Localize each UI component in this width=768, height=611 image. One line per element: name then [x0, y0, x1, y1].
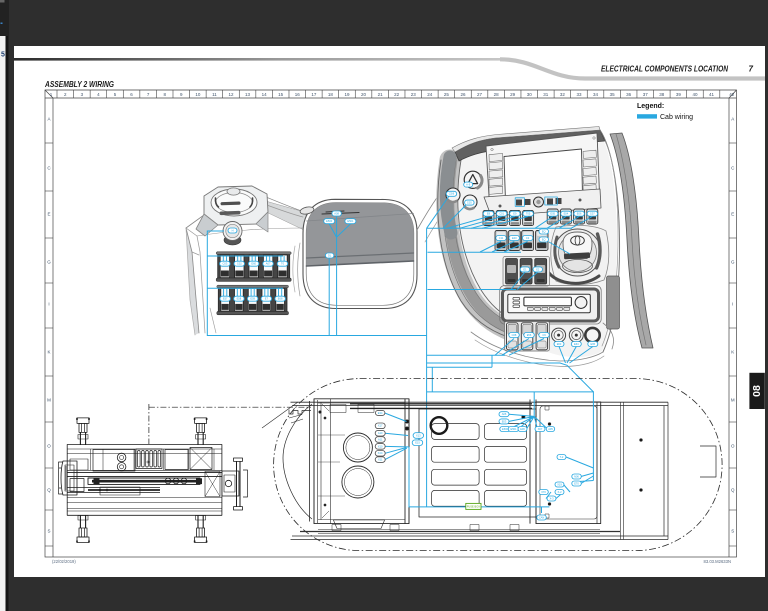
svg-text:C08: C08 — [512, 333, 517, 337]
svg-text:A-9: A-9 — [466, 183, 471, 187]
svg-text:A11: A11 — [378, 437, 383, 441]
svg-text:C2: C2 — [526, 236, 530, 240]
svg-text:C07: C07 — [590, 212, 595, 216]
svg-text:E8: E8 — [487, 212, 491, 216]
svg-text:13: 13 — [245, 92, 251, 97]
svg-text:21: 21 — [378, 92, 384, 97]
svg-text:C01: C01 — [499, 212, 504, 216]
svg-text:25: 25 — [444, 92, 450, 97]
svg-text:E9: E9 — [513, 212, 517, 216]
svg-text:32: 32 — [560, 92, 566, 97]
svg-text:15: 15 — [278, 92, 284, 97]
svg-text:G: G — [47, 260, 51, 265]
svg-text:7: 7 — [749, 65, 754, 74]
svg-text:ELECTRICAL COMPONENTS LOCATION: ELECTRICAL COMPONENTS LOCATION — [601, 64, 729, 74]
svg-text:22: 22 — [394, 92, 400, 97]
svg-text:ASSEMBLY 2 WIRING: ASSEMBLY 2 WIRING — [44, 80, 114, 89]
svg-text:39: 39 — [676, 92, 682, 97]
svg-text:T-2: T-2 — [560, 455, 564, 459]
svg-text:C05: C05 — [467, 201, 472, 205]
svg-text:X19: X19 — [557, 482, 562, 486]
svg-text:N06: N06 — [574, 474, 579, 478]
svg-text:A10: A10 — [378, 431, 383, 435]
svg-text:A05: A05 — [548, 427, 553, 431]
svg-text:E1: E1 — [523, 267, 527, 271]
svg-text:X07: X07 — [538, 427, 543, 431]
svg-text:5: 5 — [1, 52, 5, 59]
svg-text:29: 29 — [510, 92, 516, 97]
svg-text:17: 17 — [311, 92, 317, 97]
svg-text:S: S — [47, 529, 50, 534]
svg-text:41: 41 — [709, 92, 715, 97]
svg-text:S: S — [731, 529, 734, 534]
svg-text:C11: C11 — [499, 236, 504, 240]
svg-text:FUSE BOX: FUSE BOX — [467, 505, 480, 509]
svg-text:Q: Q — [47, 488, 51, 493]
svg-text:E7: E7 — [265, 297, 269, 301]
svg-text:X11: X11 — [378, 458, 383, 462]
svg-text:A: A — [731, 117, 734, 122]
svg-text:28: 28 — [494, 92, 500, 97]
svg-text:E501: E501 — [347, 219, 354, 223]
svg-text:83.03.M2633N: 83.03.M2633N — [704, 559, 731, 564]
svg-text:E03: E03 — [512, 236, 517, 240]
svg-text:24: 24 — [427, 92, 433, 97]
svg-text:E34: E34 — [378, 411, 383, 415]
svg-text:I: I — [48, 302, 49, 307]
svg-text:X-3: X-3 — [549, 496, 554, 500]
svg-text:E: E — [47, 212, 50, 217]
svg-text:35: 35 — [610, 92, 616, 97]
svg-text:E500: E500 — [326, 219, 333, 223]
svg-text:X17: X17 — [378, 424, 383, 428]
svg-text:08: 08 — [751, 385, 763, 397]
svg-text:E58: E58 — [237, 297, 242, 301]
svg-text:C9: C9 — [542, 333, 546, 337]
svg-text:33: 33 — [576, 92, 582, 97]
svg-text:27: 27 — [477, 92, 483, 97]
svg-text:K: K — [731, 350, 734, 355]
svg-text:E05: E05 — [550, 212, 555, 216]
svg-text:14: 14 — [262, 92, 268, 97]
svg-text:E500: E500 — [502, 427, 509, 431]
svg-text:G: G — [731, 260, 735, 265]
svg-text:X10: X10 — [378, 444, 383, 448]
svg-text:E06: E06 — [577, 212, 582, 216]
svg-text:36: 36 — [626, 92, 632, 97]
svg-text:E56: E56 — [527, 333, 532, 337]
svg-text:E04: E04 — [564, 212, 569, 216]
svg-text:42: 42 — [729, 92, 735, 97]
svg-text:E64: E64 — [574, 342, 579, 346]
svg-text:E03: E03 — [502, 419, 507, 423]
svg-text:Legend:: Legend: — [637, 103, 664, 110]
svg-text:Cab wiring: Cab wiring — [660, 114, 693, 121]
svg-text:C5/6: C5/6 — [449, 192, 455, 196]
svg-text:M: M — [731, 398, 735, 403]
svg-text:X-2: X-2 — [557, 490, 562, 494]
svg-text:19: 19 — [344, 92, 350, 97]
svg-text:T05: T05 — [526, 212, 531, 216]
svg-text:E57: E57 — [223, 297, 228, 301]
svg-text:EQ: EQ — [542, 237, 546, 241]
svg-text:E501: E501 — [510, 427, 517, 431]
svg-text:12: 12 — [228, 92, 234, 97]
svg-text:37: 37 — [643, 92, 649, 97]
svg-text:16: 16 — [295, 92, 301, 97]
svg-text:A: A — [47, 117, 50, 122]
svg-text:34: 34 — [593, 92, 599, 97]
svg-text:A06: A06 — [502, 412, 507, 416]
svg-text:E: E — [731, 212, 734, 217]
svg-text:(22/02/2019): (22/02/2019) — [52, 559, 76, 564]
svg-text:18: 18 — [328, 92, 334, 97]
svg-text:E63: E63 — [557, 342, 562, 346]
svg-text:40: 40 — [692, 92, 698, 97]
svg-text:A08: A08 — [334, 211, 339, 215]
svg-text:E59: E59 — [250, 297, 255, 301]
svg-text:K: K — [47, 350, 50, 355]
svg-text:C03: C03 — [223, 262, 228, 266]
svg-text:10: 10 — [195, 92, 201, 97]
svg-text:20: 20 — [361, 92, 367, 97]
svg-text:11: 11 — [212, 92, 217, 97]
svg-text:I: I — [732, 302, 733, 307]
svg-text:E68: E68 — [278, 297, 283, 301]
svg-text:EQ: EQ — [542, 229, 546, 233]
svg-text:26: 26 — [460, 92, 466, 97]
svg-text:M: M — [47, 398, 51, 403]
svg-text:E65: E65 — [590, 342, 595, 346]
svg-text:CAN: CAN — [539, 515, 545, 519]
svg-text:C02: C02 — [237, 262, 242, 266]
svg-text:DL: DL — [328, 253, 332, 257]
svg-text:X70: X70 — [541, 490, 546, 494]
svg-text:E06: E06 — [520, 427, 525, 431]
svg-text:Q: Q — [731, 488, 735, 493]
svg-text:31: 31 — [543, 92, 549, 97]
svg-text:E15: E15 — [415, 441, 420, 445]
svg-text:O: O — [47, 444, 51, 449]
svg-text:E2: E2 — [536, 267, 540, 271]
svg-text:H: H — [232, 228, 234, 232]
svg-text:38: 38 — [659, 92, 665, 97]
svg-text:E60: E60 — [251, 262, 256, 266]
svg-text:X13: X13 — [416, 433, 421, 437]
svg-text:O: O — [731, 444, 735, 449]
svg-text:A07: A07 — [266, 262, 271, 266]
svg-text:E70: E70 — [574, 481, 579, 485]
svg-text:X4C: X4C — [378, 451, 383, 455]
svg-text:30: 30 — [527, 92, 533, 97]
svg-text:23: 23 — [411, 92, 417, 97]
